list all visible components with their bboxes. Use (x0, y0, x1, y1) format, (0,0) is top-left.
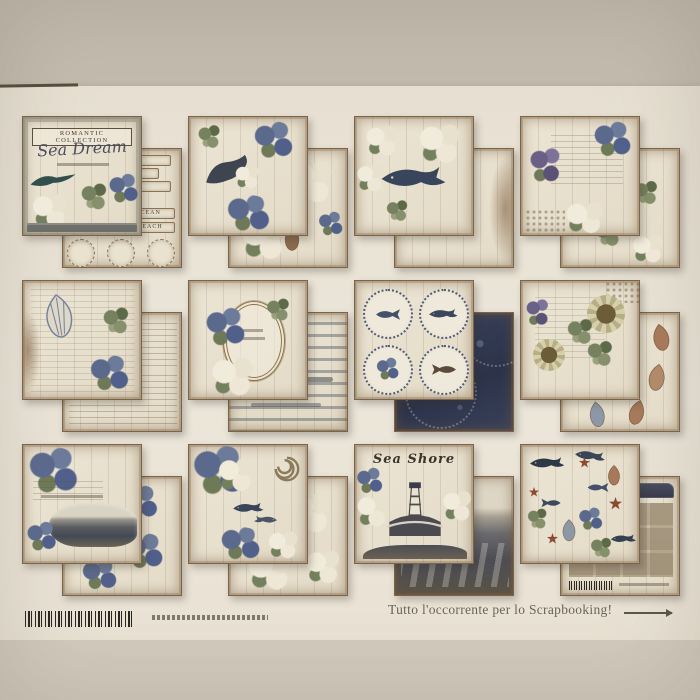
script-text (33, 481, 103, 505)
whale-icon (609, 531, 639, 545)
flower-cluster (317, 211, 345, 239)
paper-pack-8 (518, 274, 684, 438)
pack-7-front-sheet (354, 280, 474, 400)
mini-barcode (569, 581, 613, 590)
thistle-cluster (79, 559, 121, 593)
sea-medallion (363, 345, 413, 395)
flower-cluster (203, 307, 249, 351)
flower-cluster (561, 201, 611, 235)
paper-pack-6 (186, 274, 352, 438)
rocky-shore (363, 545, 467, 559)
whale-icon (251, 513, 279, 525)
flower-cluster (193, 121, 227, 153)
lighthouse-icon (379, 473, 451, 543)
barcode (25, 611, 133, 627)
paper-pack-7 (352, 274, 518, 438)
shell-icon (605, 463, 623, 487)
sea-medallion (419, 345, 469, 395)
wood-stain (489, 157, 514, 261)
seaweed-cluster (523, 505, 553, 533)
flower-cluster (577, 507, 605, 533)
pack-1-cover: ROMANTIC COLLECTION Sea Dream (22, 116, 142, 236)
flower-cluster (87, 355, 133, 395)
arrow-right-icon (624, 612, 672, 614)
fish-icon (429, 362, 459, 377)
flower-cluster (223, 195, 275, 235)
flower-cluster (207, 355, 261, 399)
paper-pack-11: Sea Shore (352, 438, 518, 602)
paper-pack-9 (20, 438, 186, 602)
tag-medallion (107, 239, 135, 267)
whale-icon (527, 453, 569, 471)
lace-texture (525, 209, 565, 233)
fine-print-bar (619, 583, 669, 586)
starfish-icon (609, 497, 622, 510)
peony-cluster (217, 527, 265, 563)
pack-4-front-sheet (520, 116, 640, 236)
paper-packs-grid: OCEAN BEACH ROMANTIC COLLECTION Sea Drea… (20, 110, 684, 604)
pack-12-front-sheet (520, 444, 640, 564)
flower-cluster (233, 163, 263, 191)
paper-pack-4 (518, 110, 684, 274)
coastal-scene (49, 503, 137, 547)
shell-icon (642, 359, 671, 395)
wisteria-cluster (525, 143, 567, 189)
pack-11-front-sheet: Sea Shore (354, 444, 474, 564)
wood-stain (22, 311, 41, 391)
flower-cluster (261, 295, 297, 325)
flower-cluster (591, 121, 635, 161)
cover-subtitle-bar (57, 163, 109, 166)
thistle-cluster (25, 521, 59, 555)
pack-9-front-sheet (22, 444, 142, 564)
flower-sprig (629, 233, 669, 265)
fine-print (152, 615, 268, 620)
shell-icon (583, 397, 611, 430)
flower-cluster (303, 547, 345, 587)
sea-medallion (419, 289, 469, 339)
tag-medallion (67, 239, 95, 267)
pack-3-front-sheet (354, 116, 474, 236)
sunflower-icon (533, 339, 565, 371)
shell-icon (646, 319, 675, 355)
flower-cluster (381, 197, 415, 225)
cover-footer-band (27, 223, 137, 232)
flower-cluster (375, 357, 401, 383)
sea-medallion (363, 289, 413, 339)
flower-cluster (265, 529, 303, 561)
table-surface (0, 640, 700, 700)
paper-pack-10 (186, 438, 352, 602)
whale-icon (377, 159, 453, 193)
peony-cluster (215, 455, 259, 495)
paint-smear (251, 403, 321, 407)
flower-cluster (363, 123, 403, 159)
sea-shore-title: Sea Shore (355, 452, 473, 467)
flower-cluster (97, 303, 137, 339)
starfish-icon (579, 457, 590, 468)
nautilus-icon (271, 453, 303, 485)
starfish-icon (547, 533, 558, 544)
photo-background: OCEAN BEACH ROMANTIC COLLECTION Sea Drea… (0, 0, 700, 700)
paper-pack-1: OCEAN BEACH ROMANTIC COLLECTION Sea Drea… (20, 110, 186, 274)
paper-pack-3 (352, 110, 518, 274)
pack-8-front-sheet (520, 280, 640, 400)
fish-icon (373, 307, 403, 322)
flower-cluster (75, 179, 115, 215)
caption-bar (41, 495, 103, 498)
paper-pack-5 (20, 274, 186, 438)
pack-2-front-sheet (188, 116, 308, 236)
pack-6-front-sheet (188, 280, 308, 400)
paper-pack-2 (186, 110, 352, 274)
wisteria-cluster (523, 295, 553, 331)
footer-tagline: Tutto l'occorrente per lo Scrapbooking! (388, 602, 612, 618)
pack-5-front-sheet (22, 280, 142, 400)
whale-icon (427, 305, 461, 321)
shell-icon (559, 517, 579, 543)
leaf-cluster (581, 337, 621, 371)
pack-10-front-sheet (188, 444, 308, 564)
paper-pack-12 (518, 438, 684, 602)
starfish-icon (529, 487, 539, 497)
tag-medallion (147, 239, 175, 267)
